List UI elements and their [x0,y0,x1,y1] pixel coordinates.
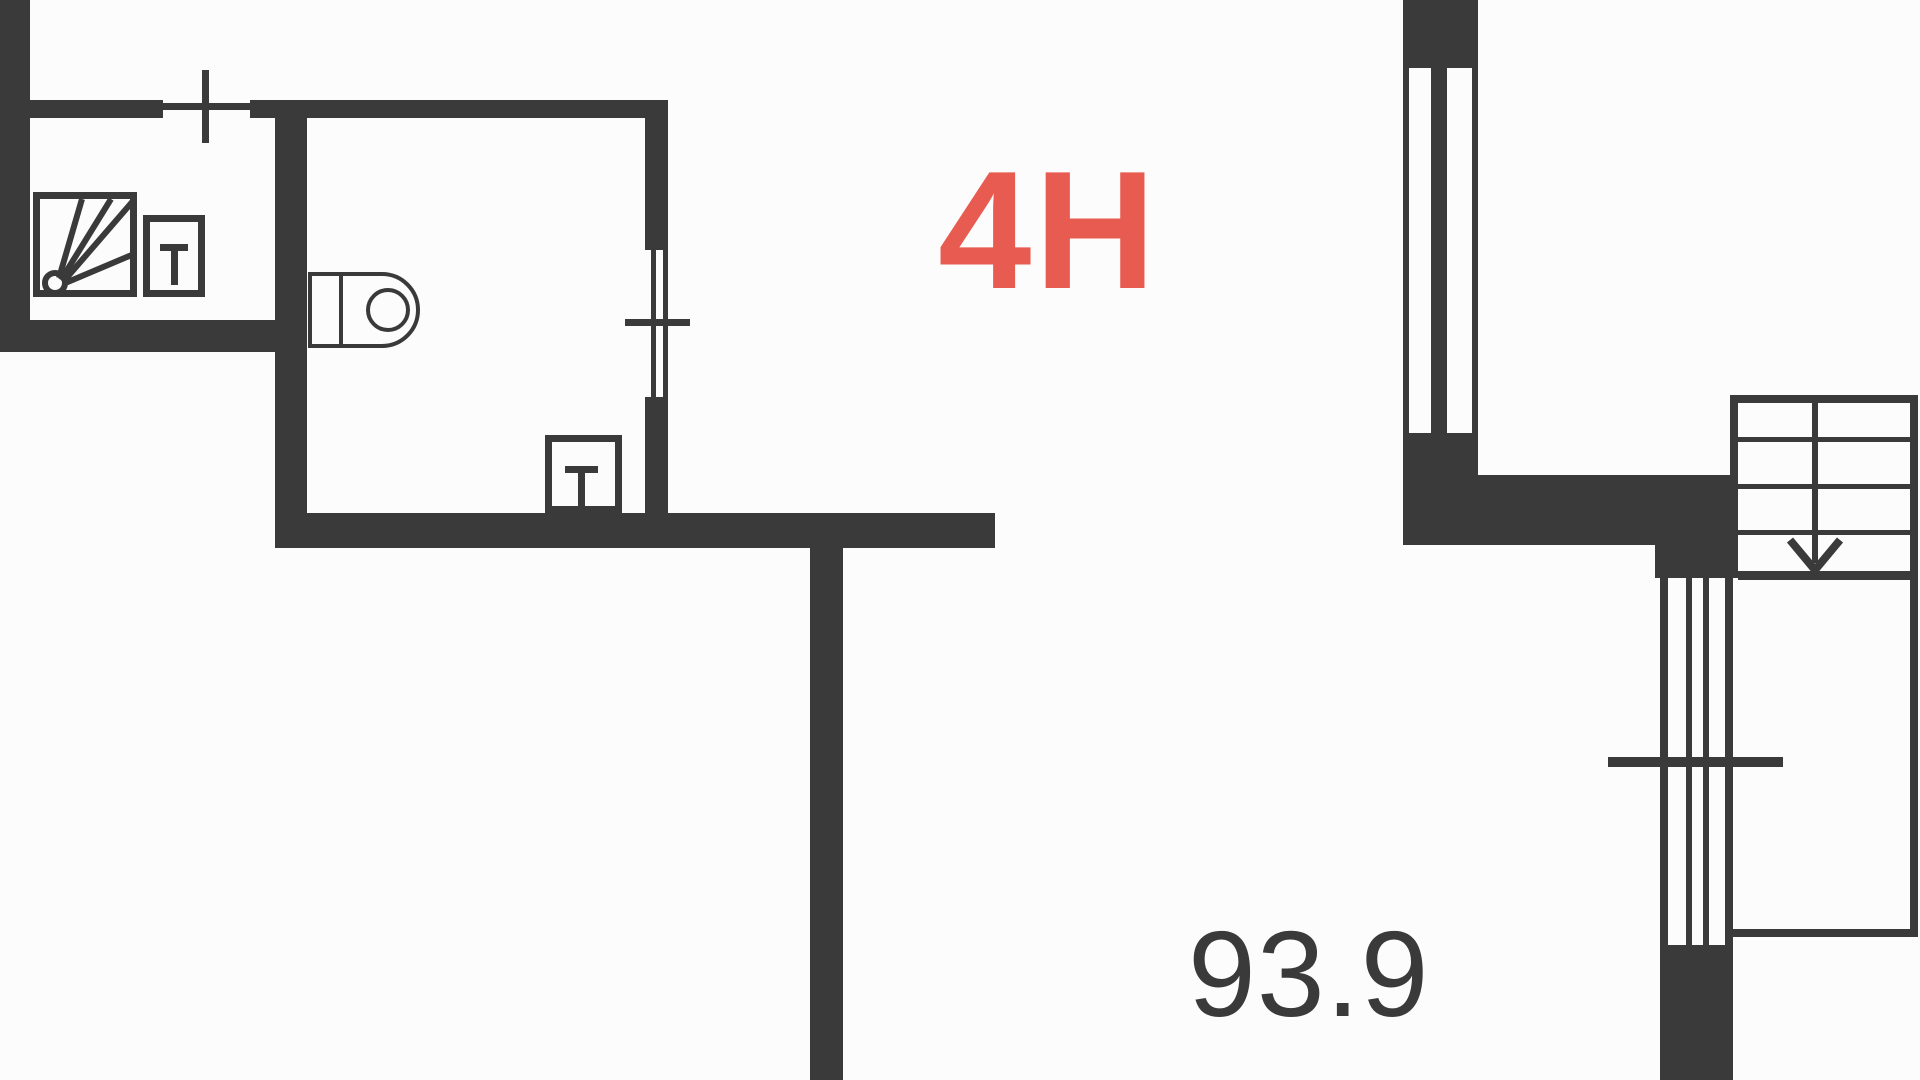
tap-symbol [565,466,598,473]
wall-hallway-bottom [307,513,995,548]
arrow-down-icon [1782,534,1848,576]
tap-symbol [160,244,188,251]
washbasin-icon [143,215,205,297]
floor-plan: 4H 93.9 [0,0,1920,1080]
wall-right-mid-solid [1403,433,1478,475]
wall-top-left-segment [30,100,163,118]
wall-living-partition [810,545,843,1080]
wall-wc-right-upper [645,118,668,250]
washbasin-icon [545,435,622,513]
stair-tread [1738,484,1910,489]
unit-label: 4H [938,146,1159,314]
wall-right-horizontal [1403,475,1738,545]
window-tick-icon [1608,757,1783,767]
window-tick-icon [202,70,209,143]
shower-fan-icon [33,192,137,297]
window-icon [1403,68,1409,433]
wall-left-exterior [0,0,30,352]
toilet-icon [308,272,420,348]
wall-wc-right-lower [645,397,668,513]
area-label: 93.9 [1188,913,1429,1035]
wall-partition-bathroom-wc [275,118,307,548]
wall-bottom-right-solid [1660,945,1733,1080]
stair-tread [1738,437,1910,442]
wall-top-right-segment [250,100,668,118]
window-tick-icon [625,319,690,326]
wall-right-top-solid [1403,0,1478,68]
wall-right-horizontal-ext [1655,545,1738,578]
wall-bathroom-bottom [0,320,307,352]
